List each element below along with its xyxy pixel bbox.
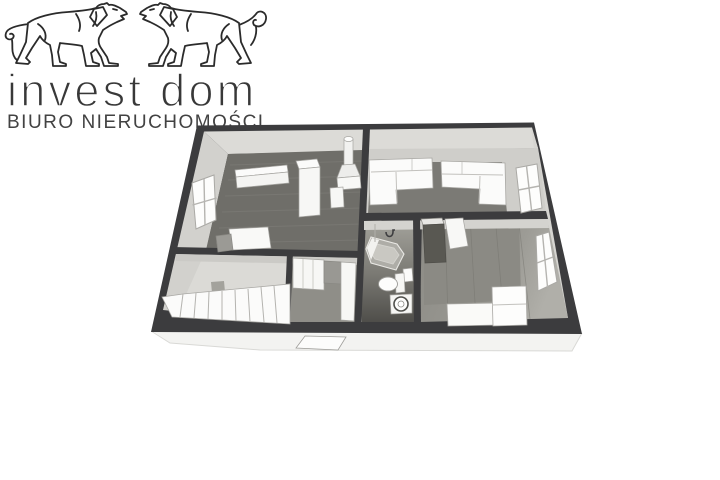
svg-text:invest dom: invest dom [7, 65, 258, 116]
